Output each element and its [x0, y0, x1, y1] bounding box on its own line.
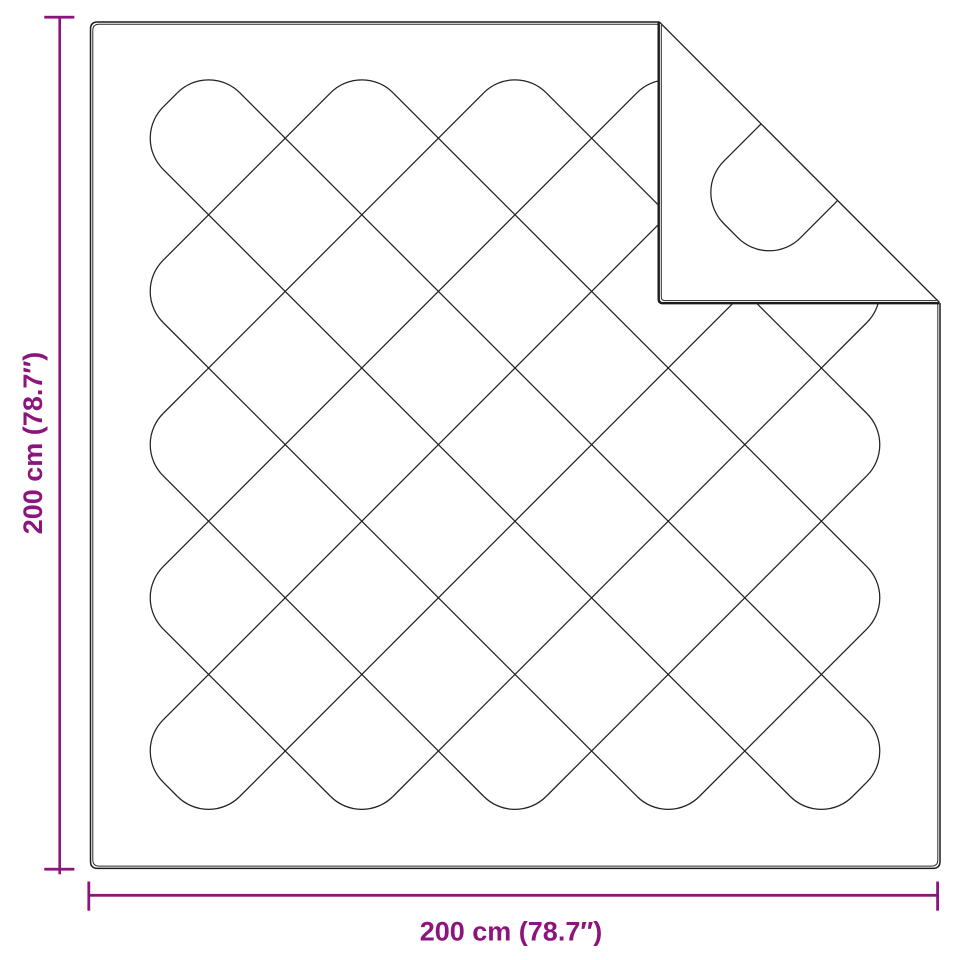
- svg-text:200 cm (78.7″): 200 cm (78.7″): [18, 352, 48, 535]
- svg-text:200 cm (78.7″): 200 cm (78.7″): [420, 917, 603, 947]
